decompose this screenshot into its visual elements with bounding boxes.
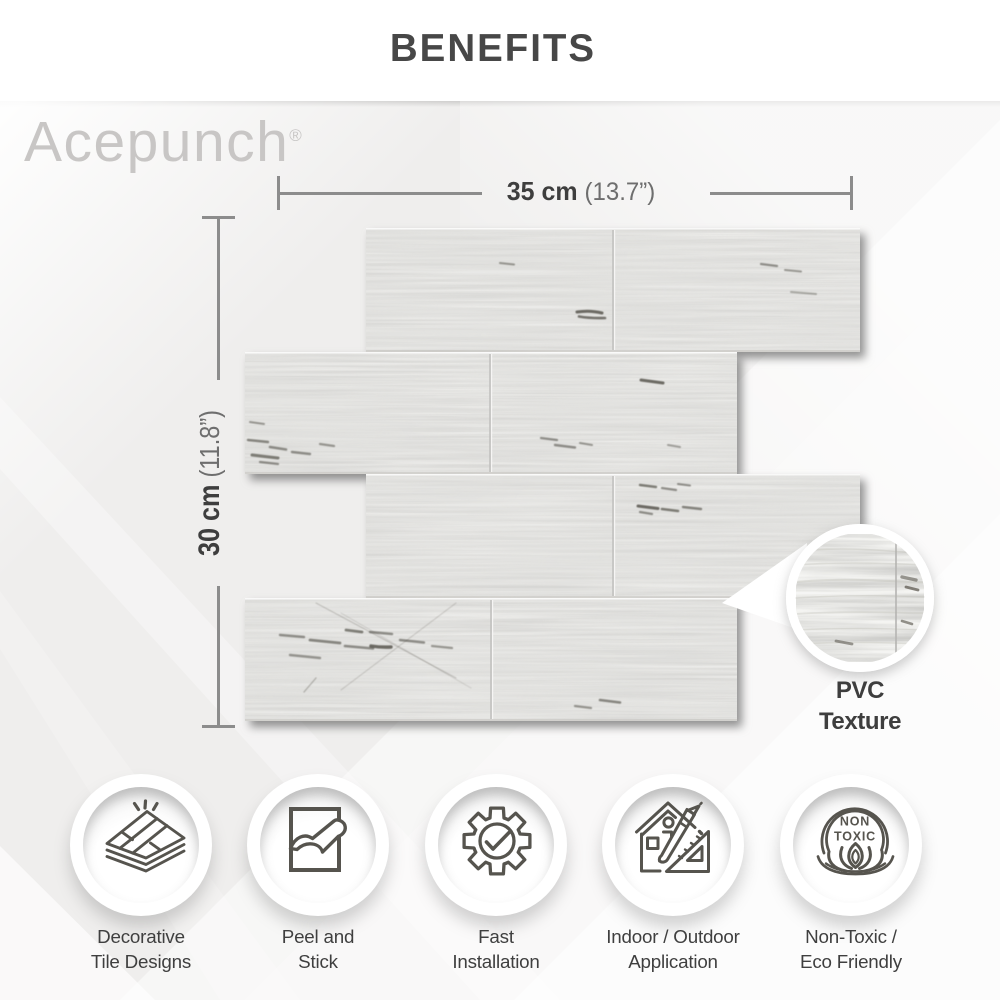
svg-text:TOXIC: TOXIC <box>834 830 876 844</box>
svg-text:NON: NON <box>840 815 870 829</box>
